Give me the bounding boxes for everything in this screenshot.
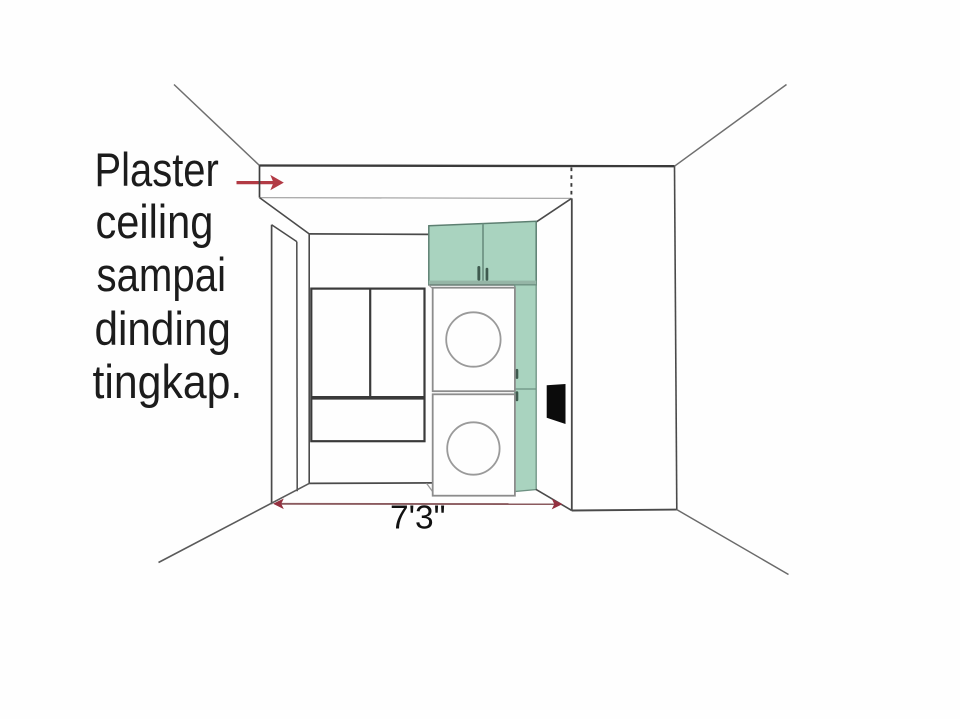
svg-text:dinding: dinding — [95, 304, 231, 356]
svg-text:ceiling: ceiling — [96, 197, 214, 249]
svg-text:sampai: sampai — [97, 249, 227, 302]
svg-text:7'3": 7'3" — [390, 500, 446, 537]
svg-text:Plaster: Plaster — [95, 145, 219, 197]
svg-text:tingkap.: tingkap. — [93, 355, 243, 408]
